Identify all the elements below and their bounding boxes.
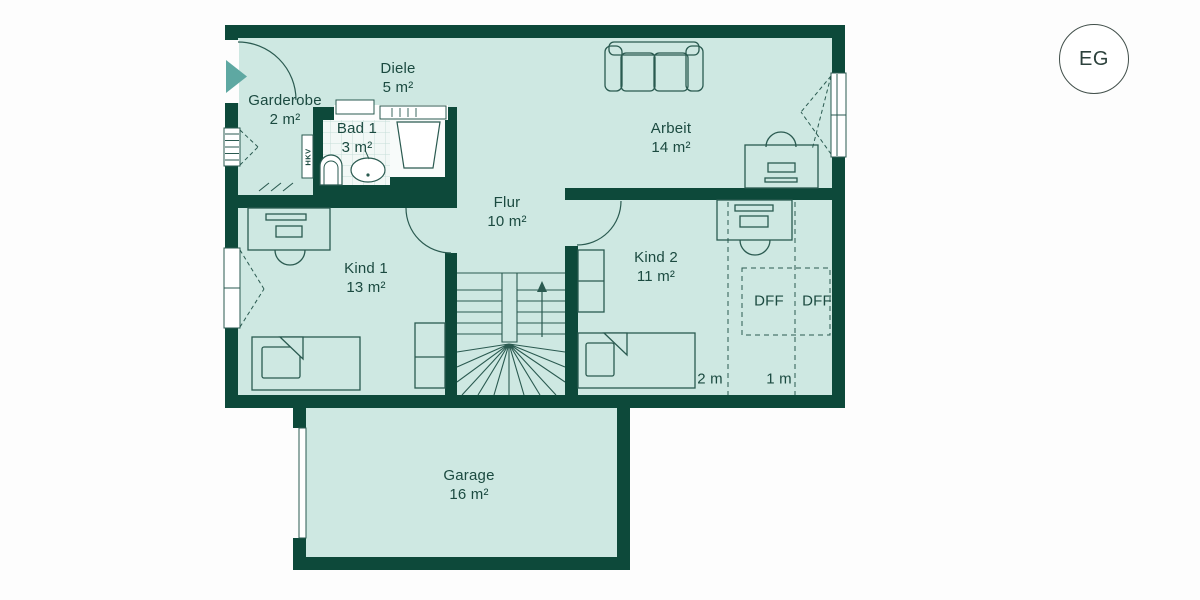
room-area: 16 m² — [443, 485, 494, 504]
room-name: Bad 1 — [337, 119, 377, 138]
room-label-garderobe: Garderobe 2 m² — [248, 91, 322, 129]
room-area: 13 m² — [344, 278, 388, 297]
toilet — [320, 155, 342, 185]
dff-label-right: DFF — [802, 292, 832, 311]
room-name: Kind 2 — [634, 248, 678, 267]
height-label-1m: 1 m — [766, 370, 792, 389]
floorplan-canvas: Diele 5 m² Garderobe 2 m² Bad 1 3 m² Arb… — [0, 0, 1200, 600]
room-label-garage: Garage 16 m² — [443, 466, 494, 504]
room-label-bad1: Bad 1 3 m² — [337, 119, 377, 157]
room-label-flur: Flur 10 m² — [487, 193, 526, 231]
room-label-kind2: Kind 2 11 m² — [634, 248, 678, 286]
floor-selector-badge[interactable]: EG — [1059, 24, 1129, 94]
room-name: Garage — [443, 466, 494, 485]
room-label-kind1: Kind 1 13 m² — [344, 259, 388, 297]
dff-label-left: DFF — [754, 292, 784, 311]
room-area: 2 m² — [248, 110, 322, 129]
room-label-arbeit: Arbeit 14 m² — [651, 119, 691, 157]
room-name: Arbeit — [651, 119, 691, 138]
room-area: 11 m² — [634, 267, 678, 286]
room-area: 10 m² — [487, 212, 526, 231]
room-area: 3 m² — [337, 138, 377, 157]
floorplan-drawing — [0, 0, 1200, 600]
height-label-2m: 2 m — [697, 370, 723, 389]
garage-door — [299, 428, 306, 538]
room-area: 14 m² — [651, 138, 691, 157]
room-name: Diele — [380, 59, 415, 78]
hkv-label: HKV — [304, 148, 313, 165]
room-label-diele: Diele 5 m² — [380, 59, 415, 97]
room-name: Kind 1 — [344, 259, 388, 278]
shower — [397, 122, 440, 168]
room-name: Garderobe — [248, 91, 322, 110]
room-name: Flur — [487, 193, 526, 212]
room-area: 5 m² — [380, 78, 415, 97]
